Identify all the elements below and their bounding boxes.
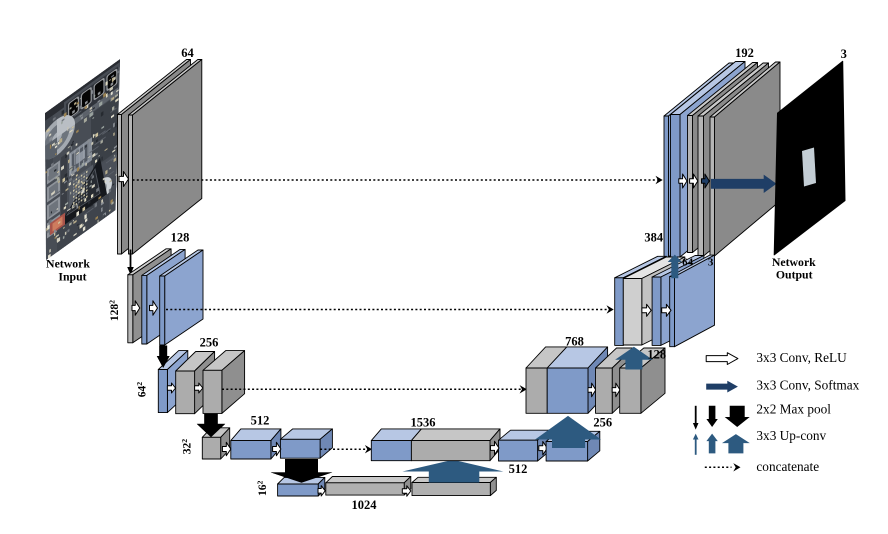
svg-text:64: 64: [682, 257, 694, 269]
svg-text:3: 3: [841, 47, 847, 61]
svg-text:128: 128: [171, 231, 190, 245]
svg-text:1536: 1536: [411, 416, 436, 430]
svg-text:768: 768: [565, 335, 584, 349]
svg-text:1024: 1024: [352, 498, 378, 512]
svg-text:512: 512: [509, 462, 528, 476]
svg-text:Input: Input: [58, 270, 86, 284]
svg-text:3x3 Up-conv: 3x3 Up-conv: [756, 428, 826, 443]
svg-text:512: 512: [251, 414, 270, 428]
svg-text:192: 192: [735, 46, 754, 60]
svg-text:256: 256: [593, 416, 612, 430]
svg-text:concatenate: concatenate: [756, 459, 819, 474]
svg-text:64: 64: [181, 46, 194, 60]
svg-text:256: 256: [200, 336, 219, 350]
svg-text:384: 384: [644, 231, 664, 245]
svg-text:3x3 Conv, Softmax: 3x3 Conv, Softmax: [756, 378, 859, 393]
svg-text:Output: Output: [776, 267, 813, 281]
svg-text:3x3 Conv, ReLU: 3x3 Conv, ReLU: [756, 350, 847, 365]
svg-text:Network: Network: [46, 257, 90, 271]
svg-text:2x2 Max pool: 2x2 Max pool: [756, 402, 831, 417]
svg-text:3: 3: [708, 257, 714, 269]
svg-text:128: 128: [647, 348, 666, 362]
